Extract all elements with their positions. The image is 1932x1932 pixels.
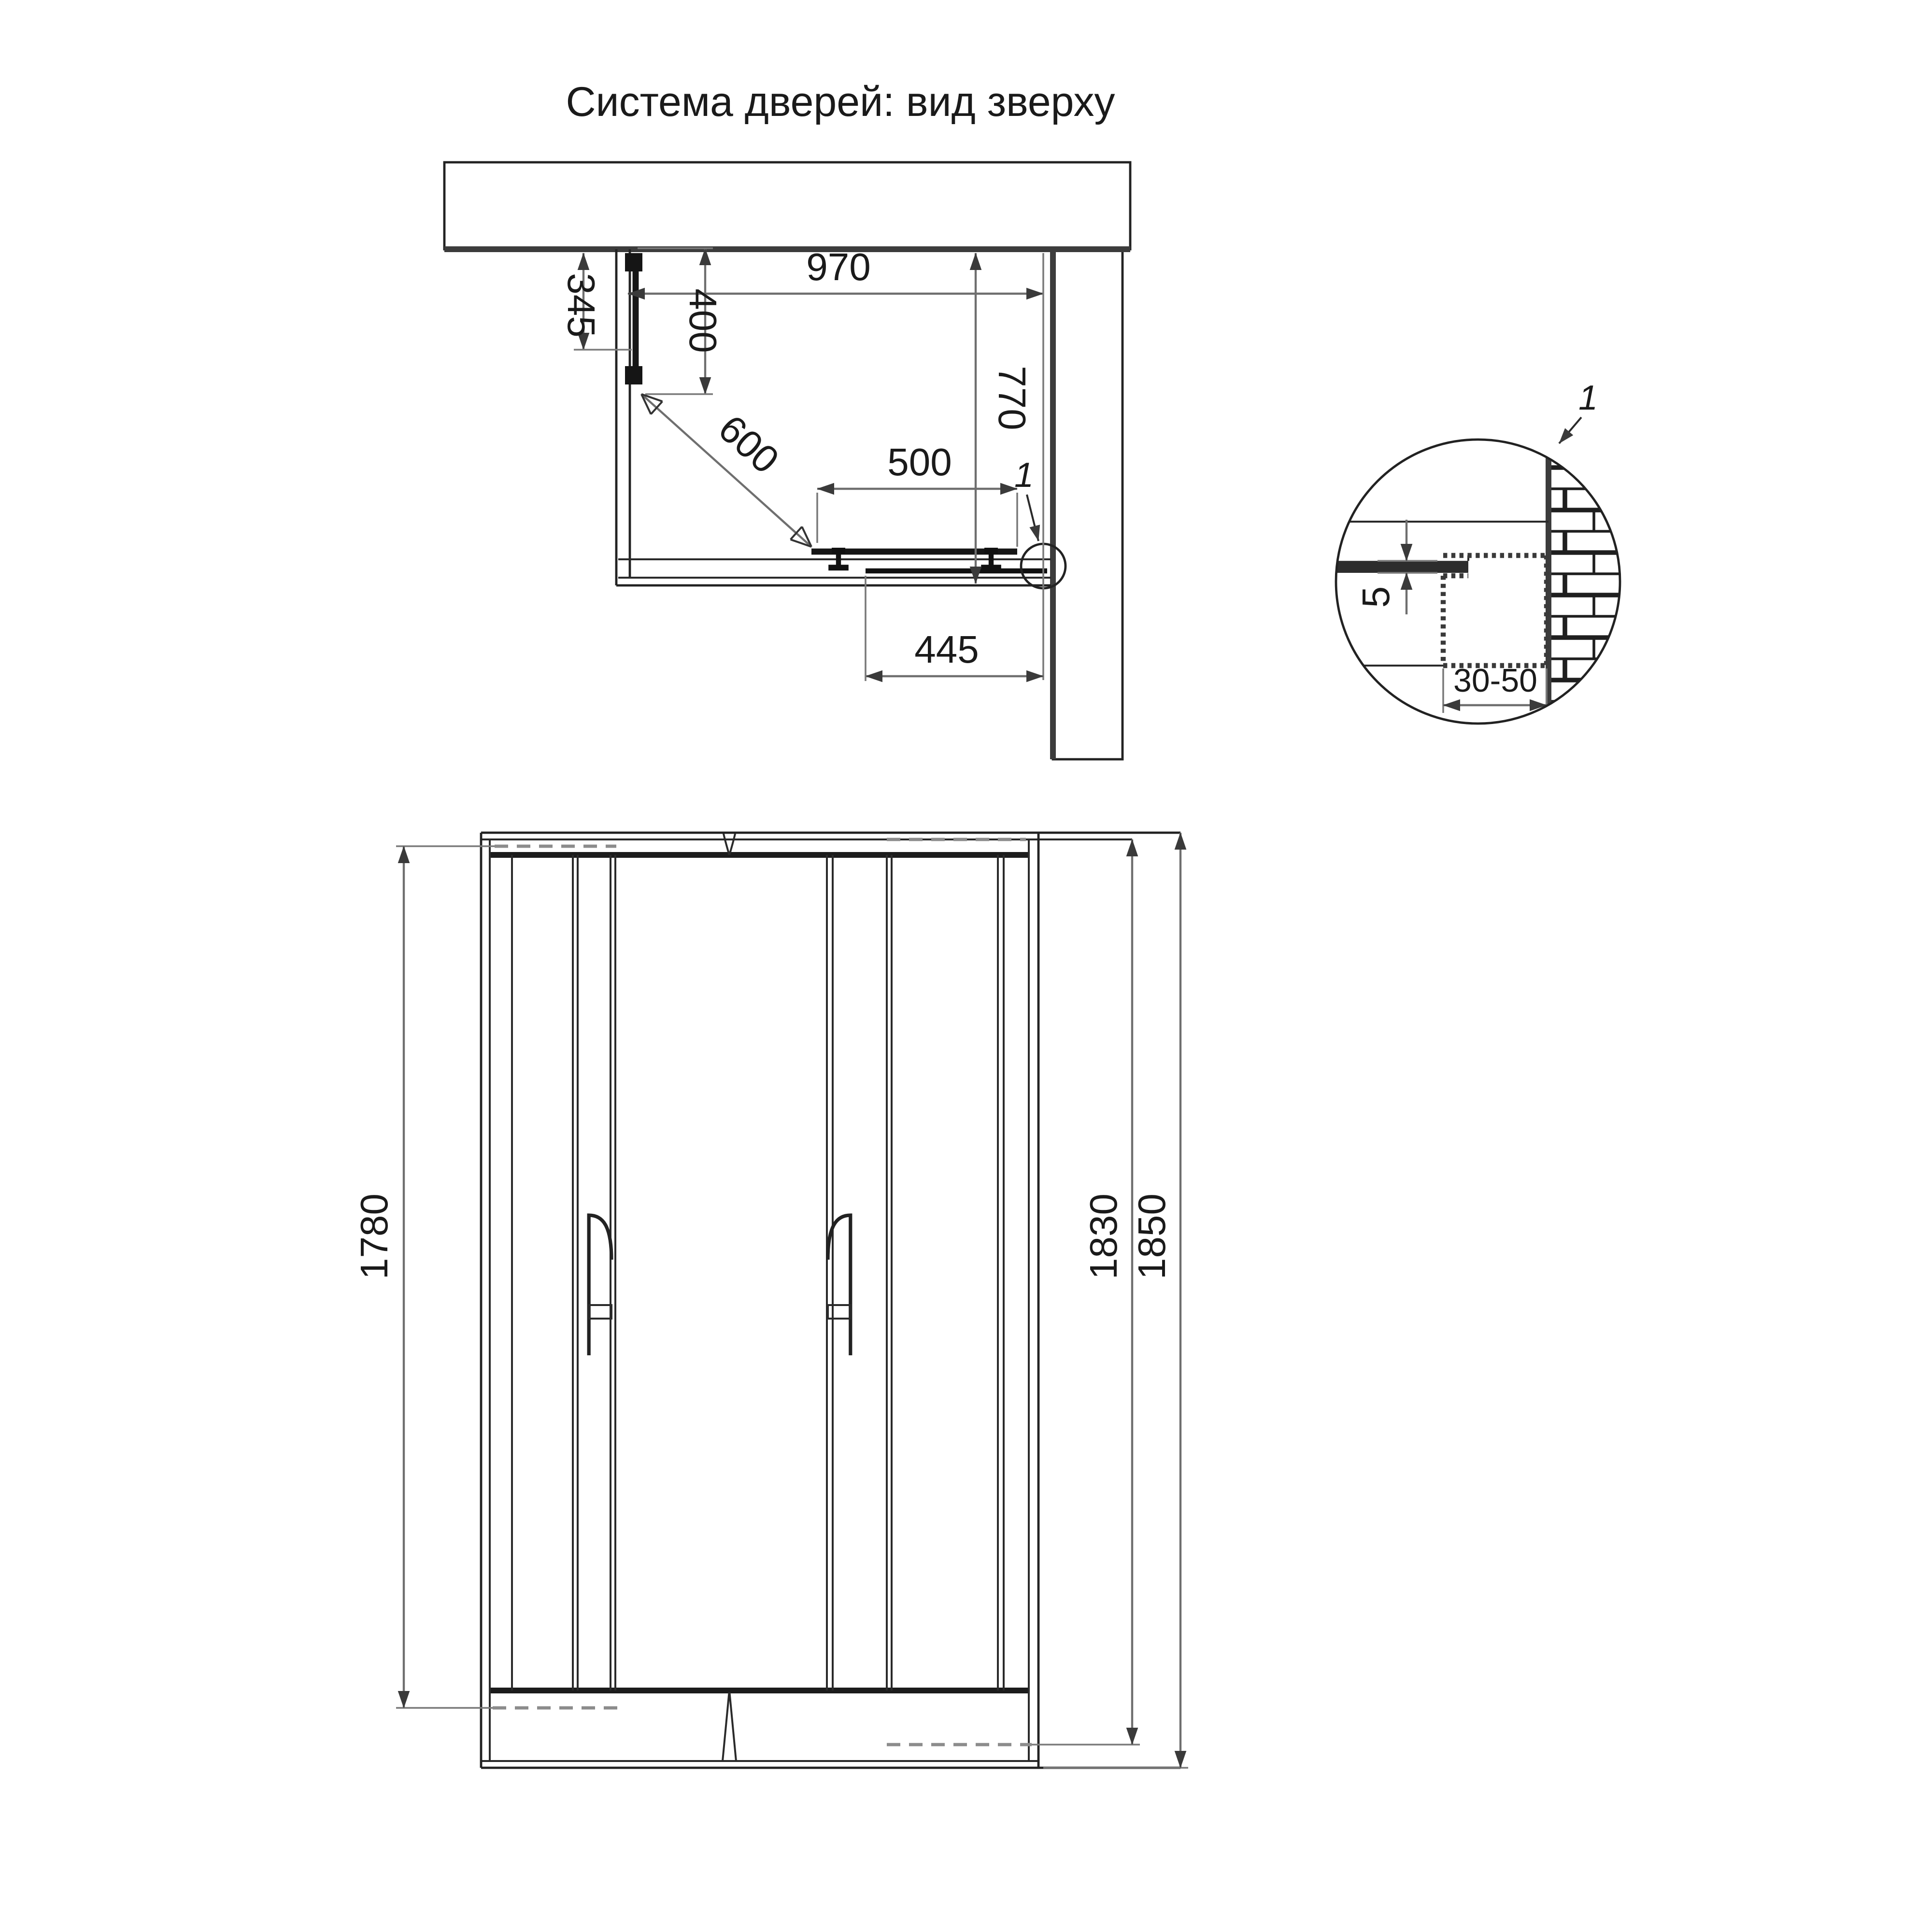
dim-5-label: 5	[1354, 586, 1397, 608]
drawing-page: Система дверей: вид зверху	[0, 0, 1932, 1932]
detail-view-content: 5 30-50	[1329, 425, 1645, 744]
right-door-handle-icon	[828, 1215, 851, 1355]
wall-bracket-icon	[625, 253, 642, 271]
detail-view-ref-label: 1	[1578, 379, 1598, 417]
dim-970-label: 970	[806, 245, 870, 288]
door-system-drawing: Система дверей: вид зверху	[0, 0, 1932, 1932]
detail-glass-panel	[1329, 561, 1468, 573]
top-wall-brick	[444, 162, 1130, 249]
front-view: 1780 1830 1850	[353, 833, 1188, 1768]
dim-345-label: 345	[560, 273, 603, 337]
dim-30-50-label: 30-50	[1453, 662, 1537, 699]
dim-1830-label: 1830	[1082, 1193, 1125, 1279]
dim-500-label: 500	[887, 440, 952, 483]
page-title: Система дверей: вид зверху	[566, 79, 1115, 125]
dim-770-label: 770	[991, 366, 1034, 430]
front-panel-edges	[512, 855, 1004, 1690]
detail-ref-label: 1	[1014, 456, 1034, 495]
left-door-handle-icon	[589, 1215, 611, 1355]
detail-dim-30-50: 30-50	[1443, 662, 1547, 713]
front-frame	[481, 833, 1180, 1768]
dim-1780-label: 1780	[353, 1193, 396, 1279]
top-view: 970 345 400 600 500 770 445	[444, 162, 1130, 759]
detail-view-leader: 1	[1559, 379, 1598, 443]
fixed-panel-plan	[616, 249, 642, 585]
dim-600-label: 600	[710, 407, 787, 482]
right-wall-brick	[1053, 249, 1122, 759]
frame-notches	[723, 834, 736, 1761]
dim-445-label: 445	[914, 628, 979, 671]
wall-bracket-icon	[625, 366, 642, 384]
dim-1850-label: 1850	[1130, 1193, 1173, 1279]
dim-400-label: 400	[682, 288, 724, 353]
detail-view: 5 30-50 1	[1329, 379, 1645, 744]
door-track-plan	[616, 544, 1065, 588]
front-view-dimensions: 1780 1830 1850	[353, 833, 1188, 1768]
top-view-dimensions: 970 345 400 600 500 770 445	[560, 245, 1043, 681]
